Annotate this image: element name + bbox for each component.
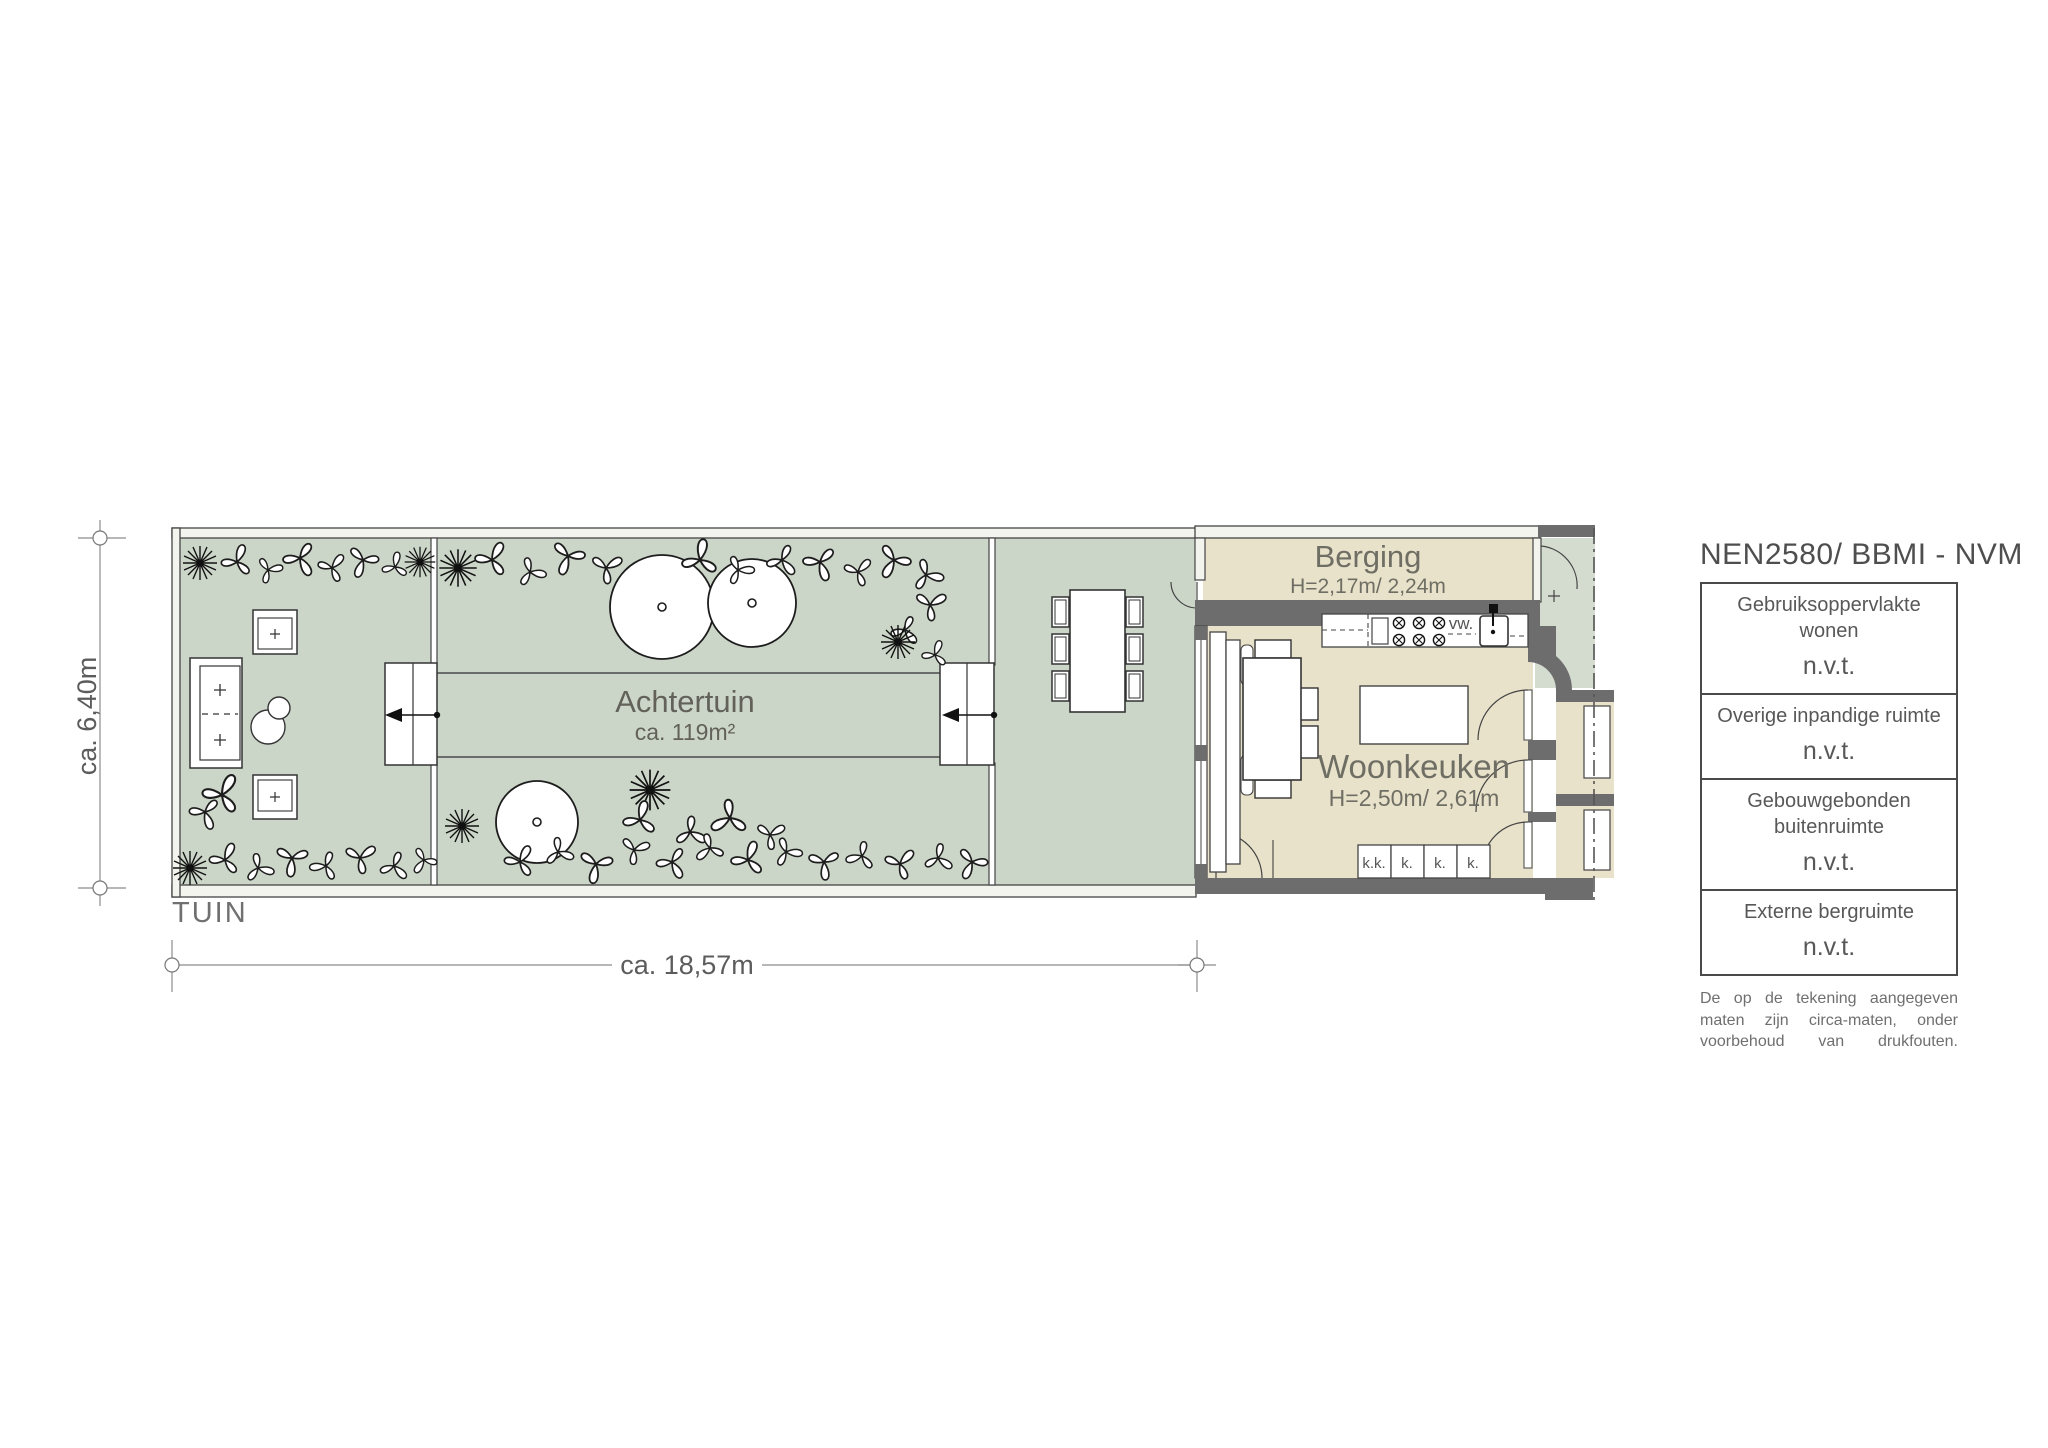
garden-dining-set [1052,590,1143,712]
legend-row-value: n.v.t. [1708,933,1950,962]
unit-label: k. [1401,855,1413,872]
legend-table: Gebruiksoppervlakte wonen n.v.t. Overige… [1700,582,1958,976]
wall [1195,878,1555,894]
title-block: NEN2580/ BBMI - NVM Gebruiksoppervlakte … [1700,538,1958,1053]
legend-row-value: n.v.t. [1708,737,1950,766]
floorplan-page: Achtertuin ca. 119m² Berging H=2,17m/ 2,… [0,0,2048,1448]
legend-row: Gebouwgebonden buitenruimte n.v.t. [1702,778,1956,889]
unit-label: k.k. [1362,855,1385,872]
garden-fence-1b [431,763,437,885]
legend-row-value: n.v.t. [1708,652,1950,681]
garden-area-label: ca. 119m² [635,719,736,745]
storage-height-label: H=2,17m/ 2,24m [1290,575,1446,598]
legend-disclaimer: De op de tekening aangegeven maten zijn … [1700,988,1958,1053]
legend-row-label: Overige inpandige ruimte [1708,703,1950,729]
kitchen-height-label: H=2,50m/ 2,61m [1329,785,1500,811]
garden-area: Achtertuin ca. 119m² [172,528,1196,897]
site-label: TUIN [172,897,248,929]
legend-row: Gebruiksoppervlakte wonen n.v.t. [1702,584,1956,693]
kitchen-island [1360,686,1468,744]
tree [610,555,714,659]
horizontal-dimension-label: ca. 18,57m [620,950,754,980]
garden-chair-top [253,610,297,654]
garden-gate-1 [385,663,440,765]
legend-row-label: Externe bergruimte [1708,899,1950,925]
sliding-glass-wall [1195,626,1207,878]
house: Berging H=2,17m/ 2,24m [1171,525,1614,905]
garden-name-label: Achtertuin [615,684,755,719]
unit-label: k. [1434,855,1446,872]
garden-fence-2 [989,538,995,665]
kitchen-units: k.k. k. k. k. [1358,845,1490,878]
legend-row: Externe bergruimte n.v.t. [1702,889,1956,974]
legend-row-label: Gebouwgebonden buitenruimte [1708,788,1950,840]
kitchen-name-label: Woonkeuken [1318,748,1510,785]
garden-sofa [190,658,242,768]
oven [1372,618,1388,644]
legend-row-value: n.v.t. [1708,848,1950,877]
legend-title: NEN2580/ BBMI - NVM [1700,538,1958,572]
garden-fence-2b [989,763,995,885]
garden-chair-bottom [253,775,297,819]
storage-name-label: Berging [1315,539,1422,574]
dishwasher-label: vw. [1449,614,1474,633]
vertical-dimension-label: ca. 6,40m [72,657,102,776]
tree [496,781,578,863]
legend-row-label: Gebruiksoppervlakte wonen [1708,592,1950,644]
garden-gate-2 [940,663,997,765]
legend-row: Overige inpandige ruimte n.v.t. [1702,693,1956,778]
unit-label: k. [1467,855,1479,872]
